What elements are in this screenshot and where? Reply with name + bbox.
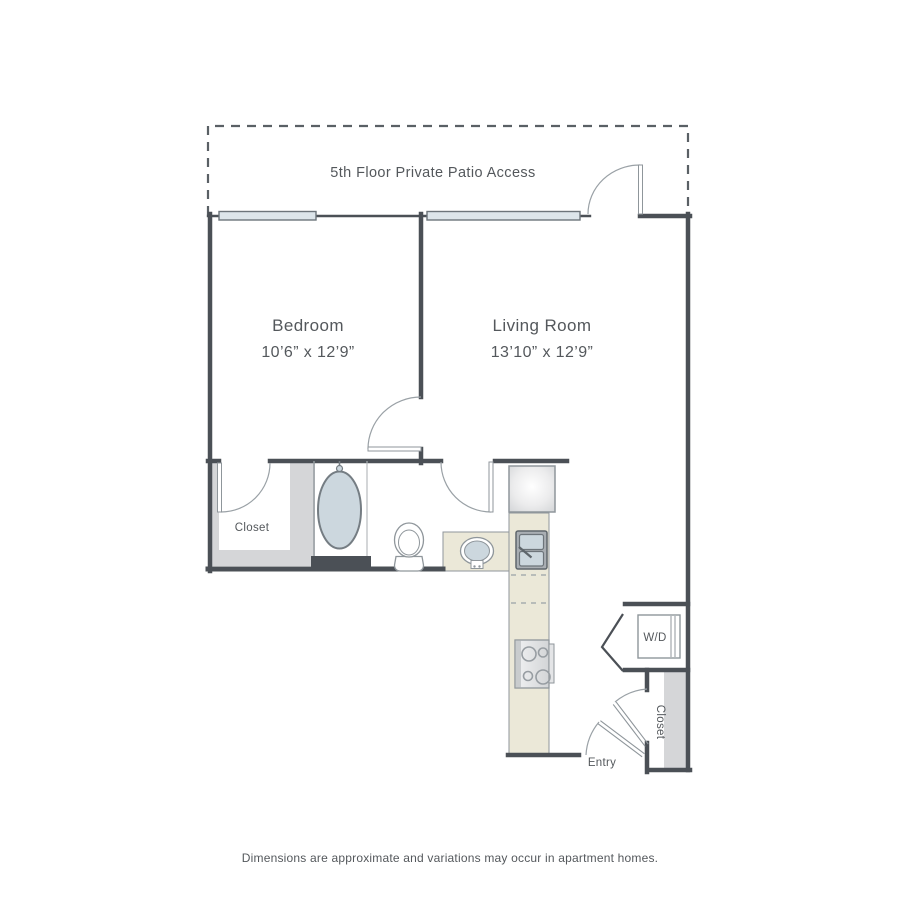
bathroom-door-arc	[441, 462, 491, 512]
stove-left-panel	[516, 641, 522, 688]
entry-closet-door-leaf	[613, 702, 648, 746]
entry-door-arc	[586, 722, 599, 755]
entry-closet-door	[613, 689, 648, 746]
bathtub	[318, 461, 361, 549]
toilet-tank	[395, 557, 424, 572]
window-2	[427, 212, 580, 221]
floor-plan-page: 5th Floor Private Patio Access	[0, 0, 900, 900]
entry-door	[586, 721, 644, 757]
walls	[208, 214, 690, 772]
entry-closet-door-arc	[615, 689, 647, 702]
bedroom-door	[368, 397, 421, 451]
entry-label: Entry	[588, 757, 616, 769]
entry-closet-label: Closet	[654, 705, 666, 740]
bedroom-closet-door-leaf	[218, 463, 222, 512]
patio-door-leaf	[639, 165, 643, 214]
footer-note: Dimensions are approximate and variation…	[242, 851, 658, 865]
stove	[515, 640, 554, 688]
entry-closet-shelving	[664, 672, 686, 768]
bedroom-label: Bedroom	[272, 316, 344, 335]
bedroom-closet-door-arc	[221, 463, 270, 512]
tub-faucet	[337, 466, 343, 472]
bathroom-door	[441, 462, 493, 512]
tub-half-wall	[311, 556, 371, 570]
window-1	[219, 212, 316, 221]
bedroom-door-leaf	[368, 447, 421, 451]
refrigerator	[509, 466, 555, 512]
bedroom-closet-label: Closet	[235, 522, 270, 534]
bedroom-closet-shelving	[211, 463, 313, 566]
bathroom-door-leaf	[489, 462, 493, 512]
toilet-bowl-inner	[399, 530, 420, 555]
entry-door-leaf	[598, 721, 644, 757]
floor-plan-svg: 5th Floor Private Patio Access	[0, 0, 900, 900]
living-room-dimensions: 13’10” x 12’9”	[491, 344, 594, 361]
patio-door	[588, 165, 643, 214]
bedroom-door-arc	[368, 397, 421, 449]
washer-dryer: W/D	[638, 615, 680, 658]
toilet	[395, 523, 424, 571]
bathroom-sink-faucet	[471, 561, 483, 569]
kitchen-sink	[516, 531, 547, 569]
laundry-bifold-door	[602, 614, 623, 671]
bedroom-dimensions: 10’6” x 12’9”	[261, 344, 354, 361]
laundry-label: W/D	[643, 632, 666, 644]
patio-access-label: 5th Floor Private Patio Access	[330, 165, 535, 181]
bedroom-closet-door	[218, 463, 271, 512]
living-room-label: Living Room	[493, 316, 592, 335]
patio-door-arc	[588, 165, 640, 214]
